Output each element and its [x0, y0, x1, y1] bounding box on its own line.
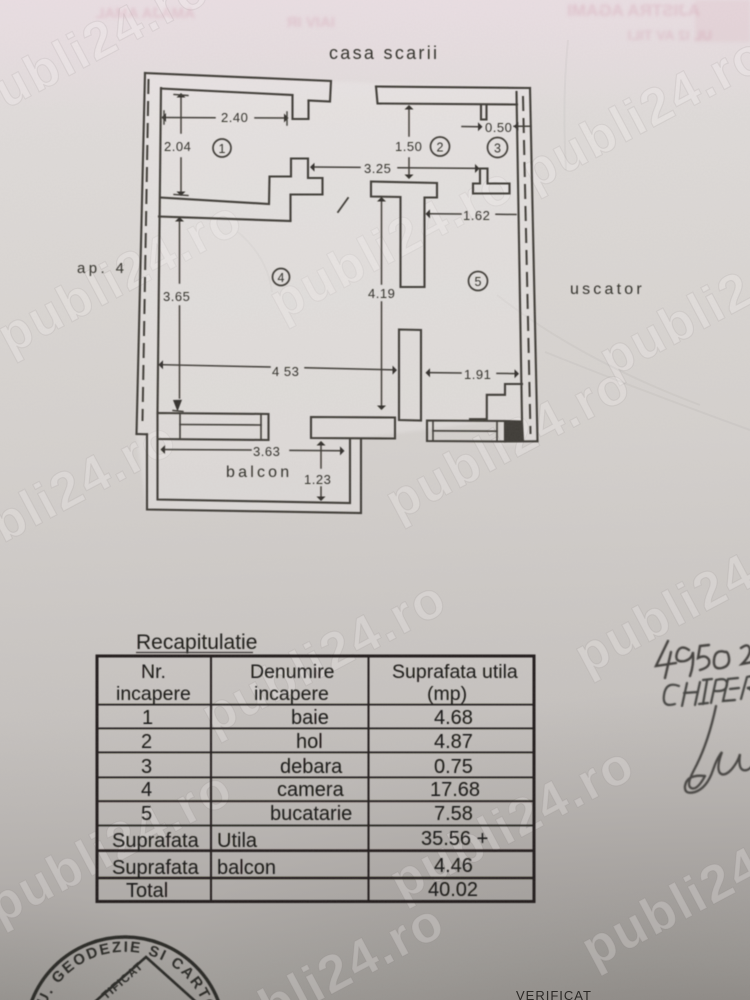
- svg-text:VERIFICAT: VERIFICAT: [516, 988, 592, 1000]
